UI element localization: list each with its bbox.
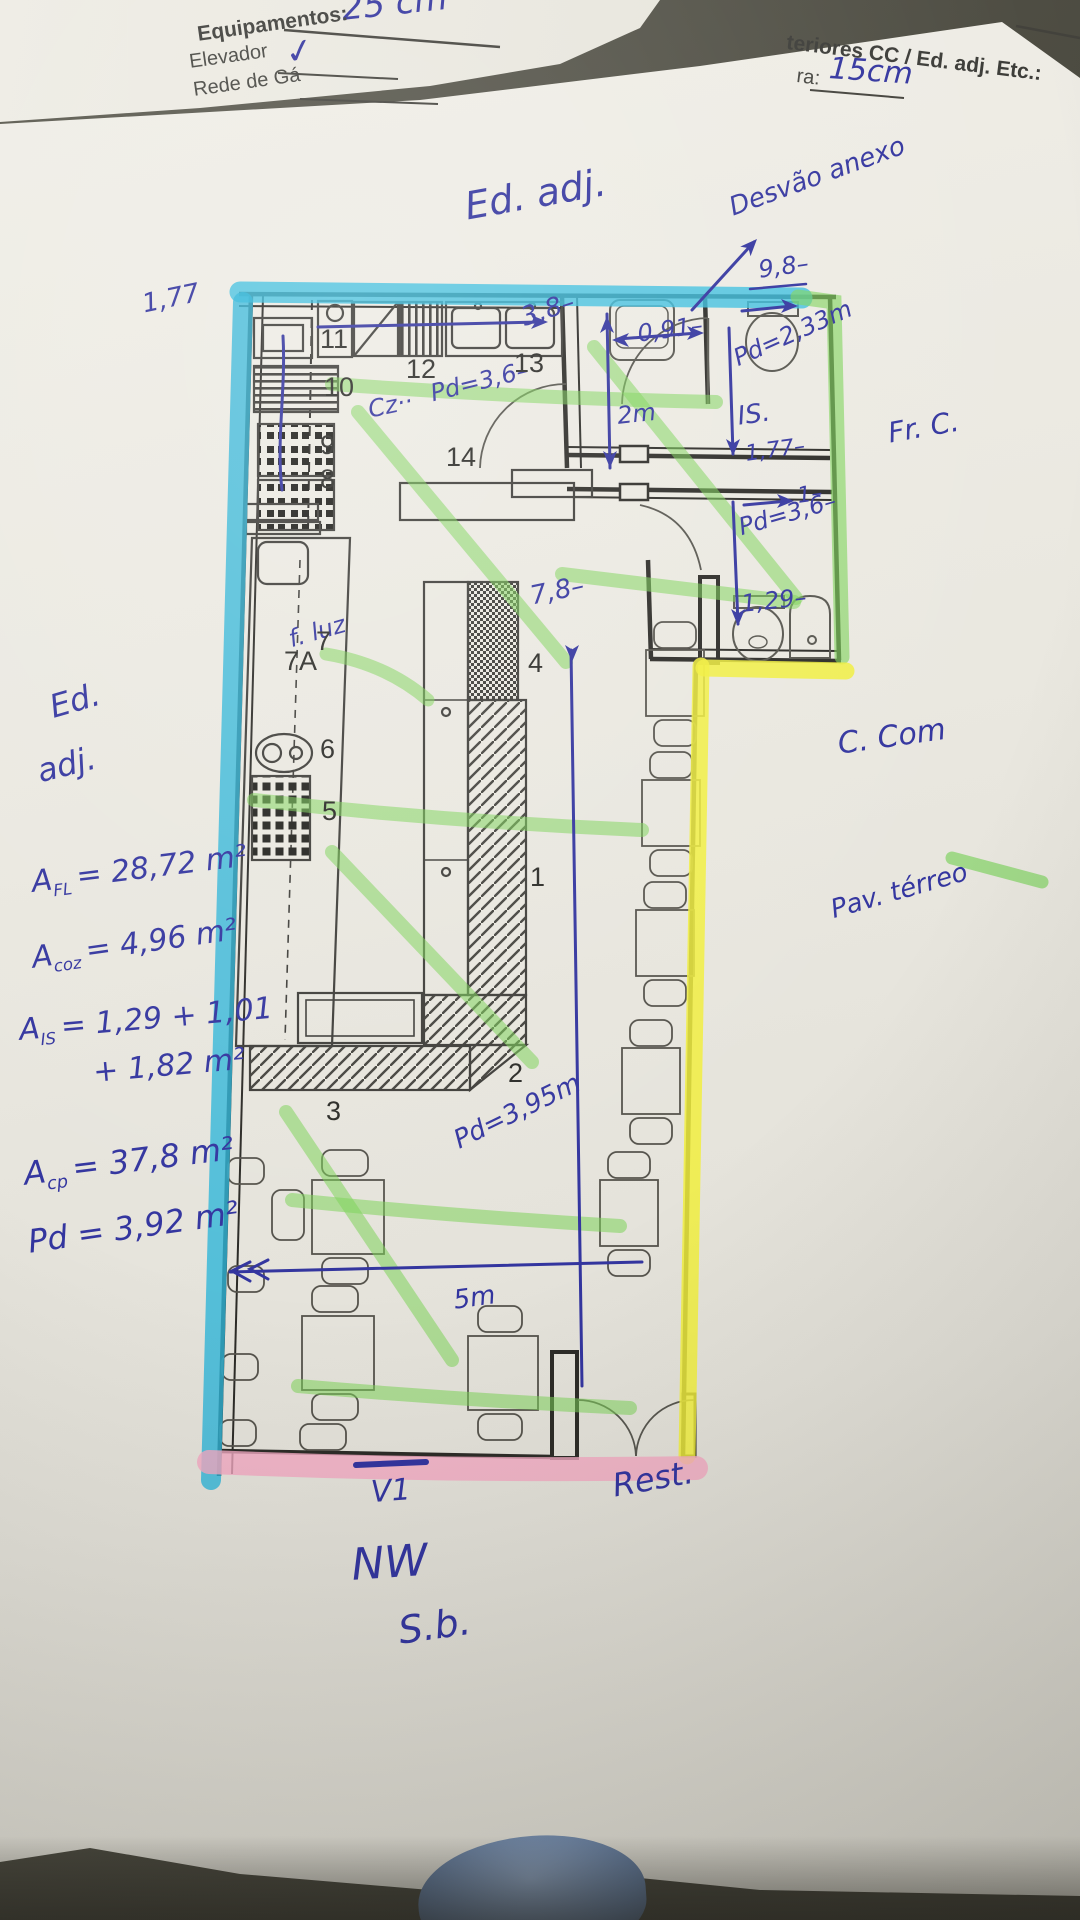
dim-5m: 5m <box>452 1282 497 1314</box>
note-cz: Cz·· <box>366 389 415 422</box>
note-ed-left-line1: Ed. <box>46 678 104 723</box>
bottom-shadow <box>0 1836 1080 1920</box>
formula-pd-total: Pd = 3,92 m² <box>26 1196 241 1257</box>
area-symbol: A <box>22 1152 48 1192</box>
handwritten-dimension-25cm: 25 cm <box>340 0 449 26</box>
area-symbol: A <box>30 863 55 900</box>
equipment-list-heading: Equipamentos: <box>196 3 349 45</box>
note-v1: V1 <box>370 1475 412 1508</box>
area-value: = 37,8 m² <box>70 1129 236 1187</box>
note-desvao-anexo: Desvão anexo <box>726 133 909 221</box>
dim-9-8: 9,8– <box>757 251 810 282</box>
printed-field-label: ra: <box>796 66 822 89</box>
dim-2m: 2m <box>616 400 657 428</box>
note-pav-terreo: Pav. térreo <box>828 859 971 923</box>
room-number-13: 13 <box>514 350 544 377</box>
room-number-14: 14 <box>446 444 476 471</box>
area-value: = 4,96 m² <box>83 912 239 968</box>
area-subscript: cp <box>46 1172 69 1194</box>
printed-header-fragment: teriores CC / Ed. adj. Etc.: <box>785 32 1042 84</box>
handwritten-15cm: 15cm <box>828 54 914 90</box>
area-formula-fl: AFL= 28,72 m² <box>30 842 249 903</box>
area-formula-coz: Acoz= 4,96 m² <box>30 915 239 978</box>
room-number-10: 10 <box>324 374 354 401</box>
area-value: = 1,29 + 1,01 <box>59 991 274 1044</box>
room-number-6: 6 <box>320 736 335 763</box>
area-formula-cp: Acp= 37,8 m² <box>22 1132 236 1196</box>
note-ed-left-line2: adj. <box>34 742 99 787</box>
dim-0-91: 0,91– <box>636 313 704 346</box>
note-ed-adj-top: Ed. adj. <box>462 163 609 225</box>
note-c-com: C. Com <box>836 715 948 760</box>
room-number-12: 12 <box>406 356 436 383</box>
photo-of-annotated-floor-plan: 25 cm Equipamentos: Elevador ✓ Rede de G… <box>0 0 1080 1920</box>
area-formula-is-line2: + 1,82 m² <box>92 1045 246 1088</box>
room-number-8: 8 <box>320 466 335 493</box>
room-number-7: 7 <box>316 628 331 655</box>
area-symbol: A <box>30 938 55 976</box>
dim-7-8: 7,8– <box>528 573 587 610</box>
note-fr-c: Fr. C. <box>886 408 961 448</box>
note-nw: NW <box>350 1539 429 1588</box>
dim-1-77-left: 1,77 <box>140 280 202 317</box>
handwritten-and-printed-labels: 25 cm Equipamentos: Elevador ✓ Rede de G… <box>0 0 1080 1920</box>
room-number-1: 1 <box>530 864 545 891</box>
note-sb: S.b. <box>396 1602 473 1650</box>
note-is: IS. <box>736 399 772 429</box>
room-number-2: 2 <box>508 1060 523 1087</box>
room-number-11: 11 <box>320 326 348 353</box>
room-number-9: 9 <box>320 432 335 459</box>
area-subscript: IS <box>40 1029 57 1049</box>
room-number-4: 4 <box>528 650 543 677</box>
note-pd-36-right: Pd=3,6– <box>736 488 839 539</box>
area-symbol: A <box>18 1011 42 1048</box>
dim-3-8: 3,8– <box>518 289 578 331</box>
area-subscript: FL <box>52 879 73 900</box>
note-rest: Rest. <box>610 1456 696 1502</box>
room-number-7a: 7A <box>284 648 317 675</box>
room-number-5: 5 <box>322 798 337 825</box>
area-subscript: coz <box>53 953 83 976</box>
note-pd-233: Pd=2,33m <box>730 296 855 369</box>
area-value: = 28,72 m² <box>75 839 249 895</box>
dim-1-77-is: 1,77– <box>744 436 806 466</box>
room-number-3: 3 <box>326 1098 341 1125</box>
dim-1-29: 1,29– <box>740 585 808 616</box>
